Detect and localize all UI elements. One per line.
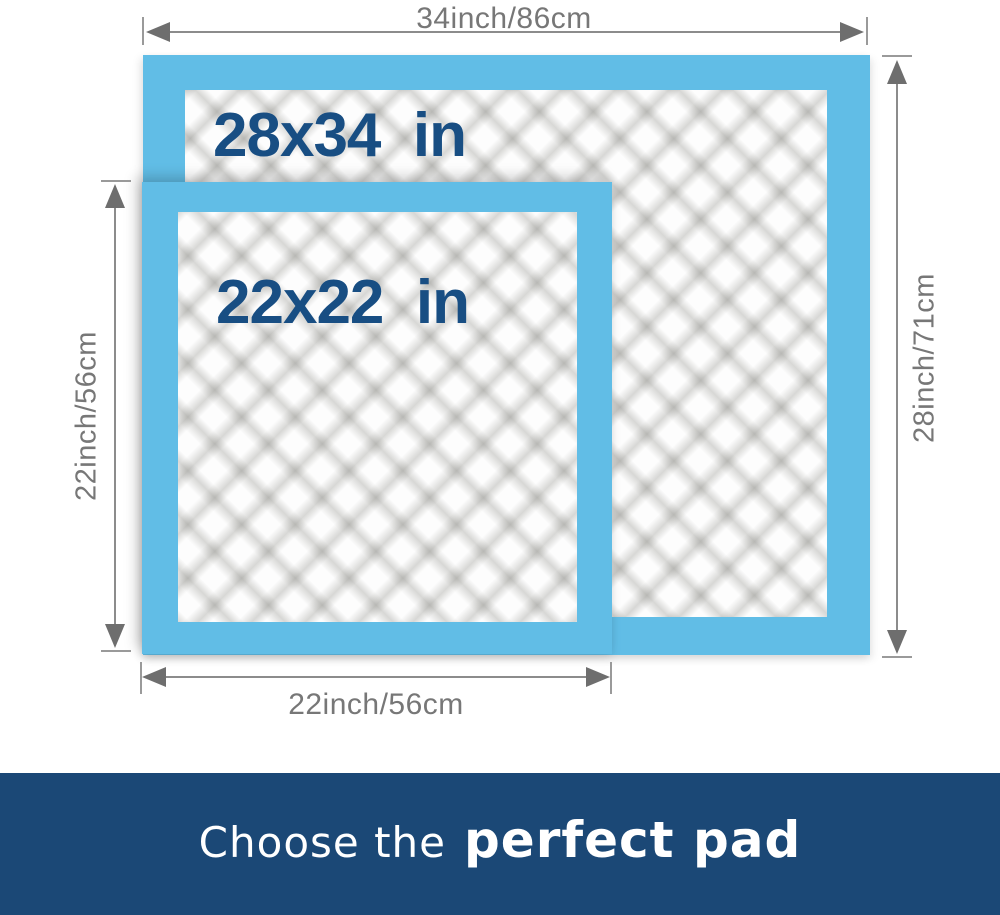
right-dimension-bottom-tick [882, 656, 912, 658]
bottom-dimension-right-tick [610, 662, 612, 694]
right-dimension-label: 28inch/71cm [898, 62, 952, 654]
top-dimension-line [152, 31, 858, 33]
arrowhead-down-icon [887, 630, 907, 654]
left-dimension-label: 22inch/56cm [58, 186, 116, 646]
small-pad-size-label: 22x22 in [216, 272, 469, 334]
banner-prefix-text: Choose the [199, 818, 446, 867]
top-dimension-left-tick [142, 17, 144, 45]
top-dimension-right-tick [866, 17, 868, 45]
right-dimension-line [896, 66, 898, 648]
arrowhead-left-icon [142, 667, 166, 687]
large-pad-size-label: 28x34 in [213, 105, 466, 167]
arrowhead-right-icon [840, 22, 864, 42]
arrowhead-right-icon [586, 667, 610, 687]
bottom-dimension-label: 22inch/56cm [140, 688, 612, 722]
left-dimension-top-tick [101, 180, 131, 182]
arrowhead-down-icon [105, 624, 125, 648]
arrowhead-left-icon [146, 22, 170, 42]
left-dimension-line [114, 190, 116, 642]
banner-highlight-text: perfect pad [464, 811, 801, 869]
bottom-dimension-line [150, 676, 602, 678]
arrowhead-up-icon [887, 60, 907, 84]
right-dimension-top-tick [882, 55, 912, 57]
banner-text: Choose the perfect pad [199, 811, 802, 869]
arrowhead-up-icon [105, 184, 125, 208]
left-dimension-bottom-tick [101, 650, 131, 652]
pad-size-infographic: 28x34 in 22x22 in 34inch/86cm 28inch/71c… [0, 0, 1000, 915]
banner: Choose the perfect pad [0, 773, 1000, 915]
small-pad [142, 182, 612, 654]
